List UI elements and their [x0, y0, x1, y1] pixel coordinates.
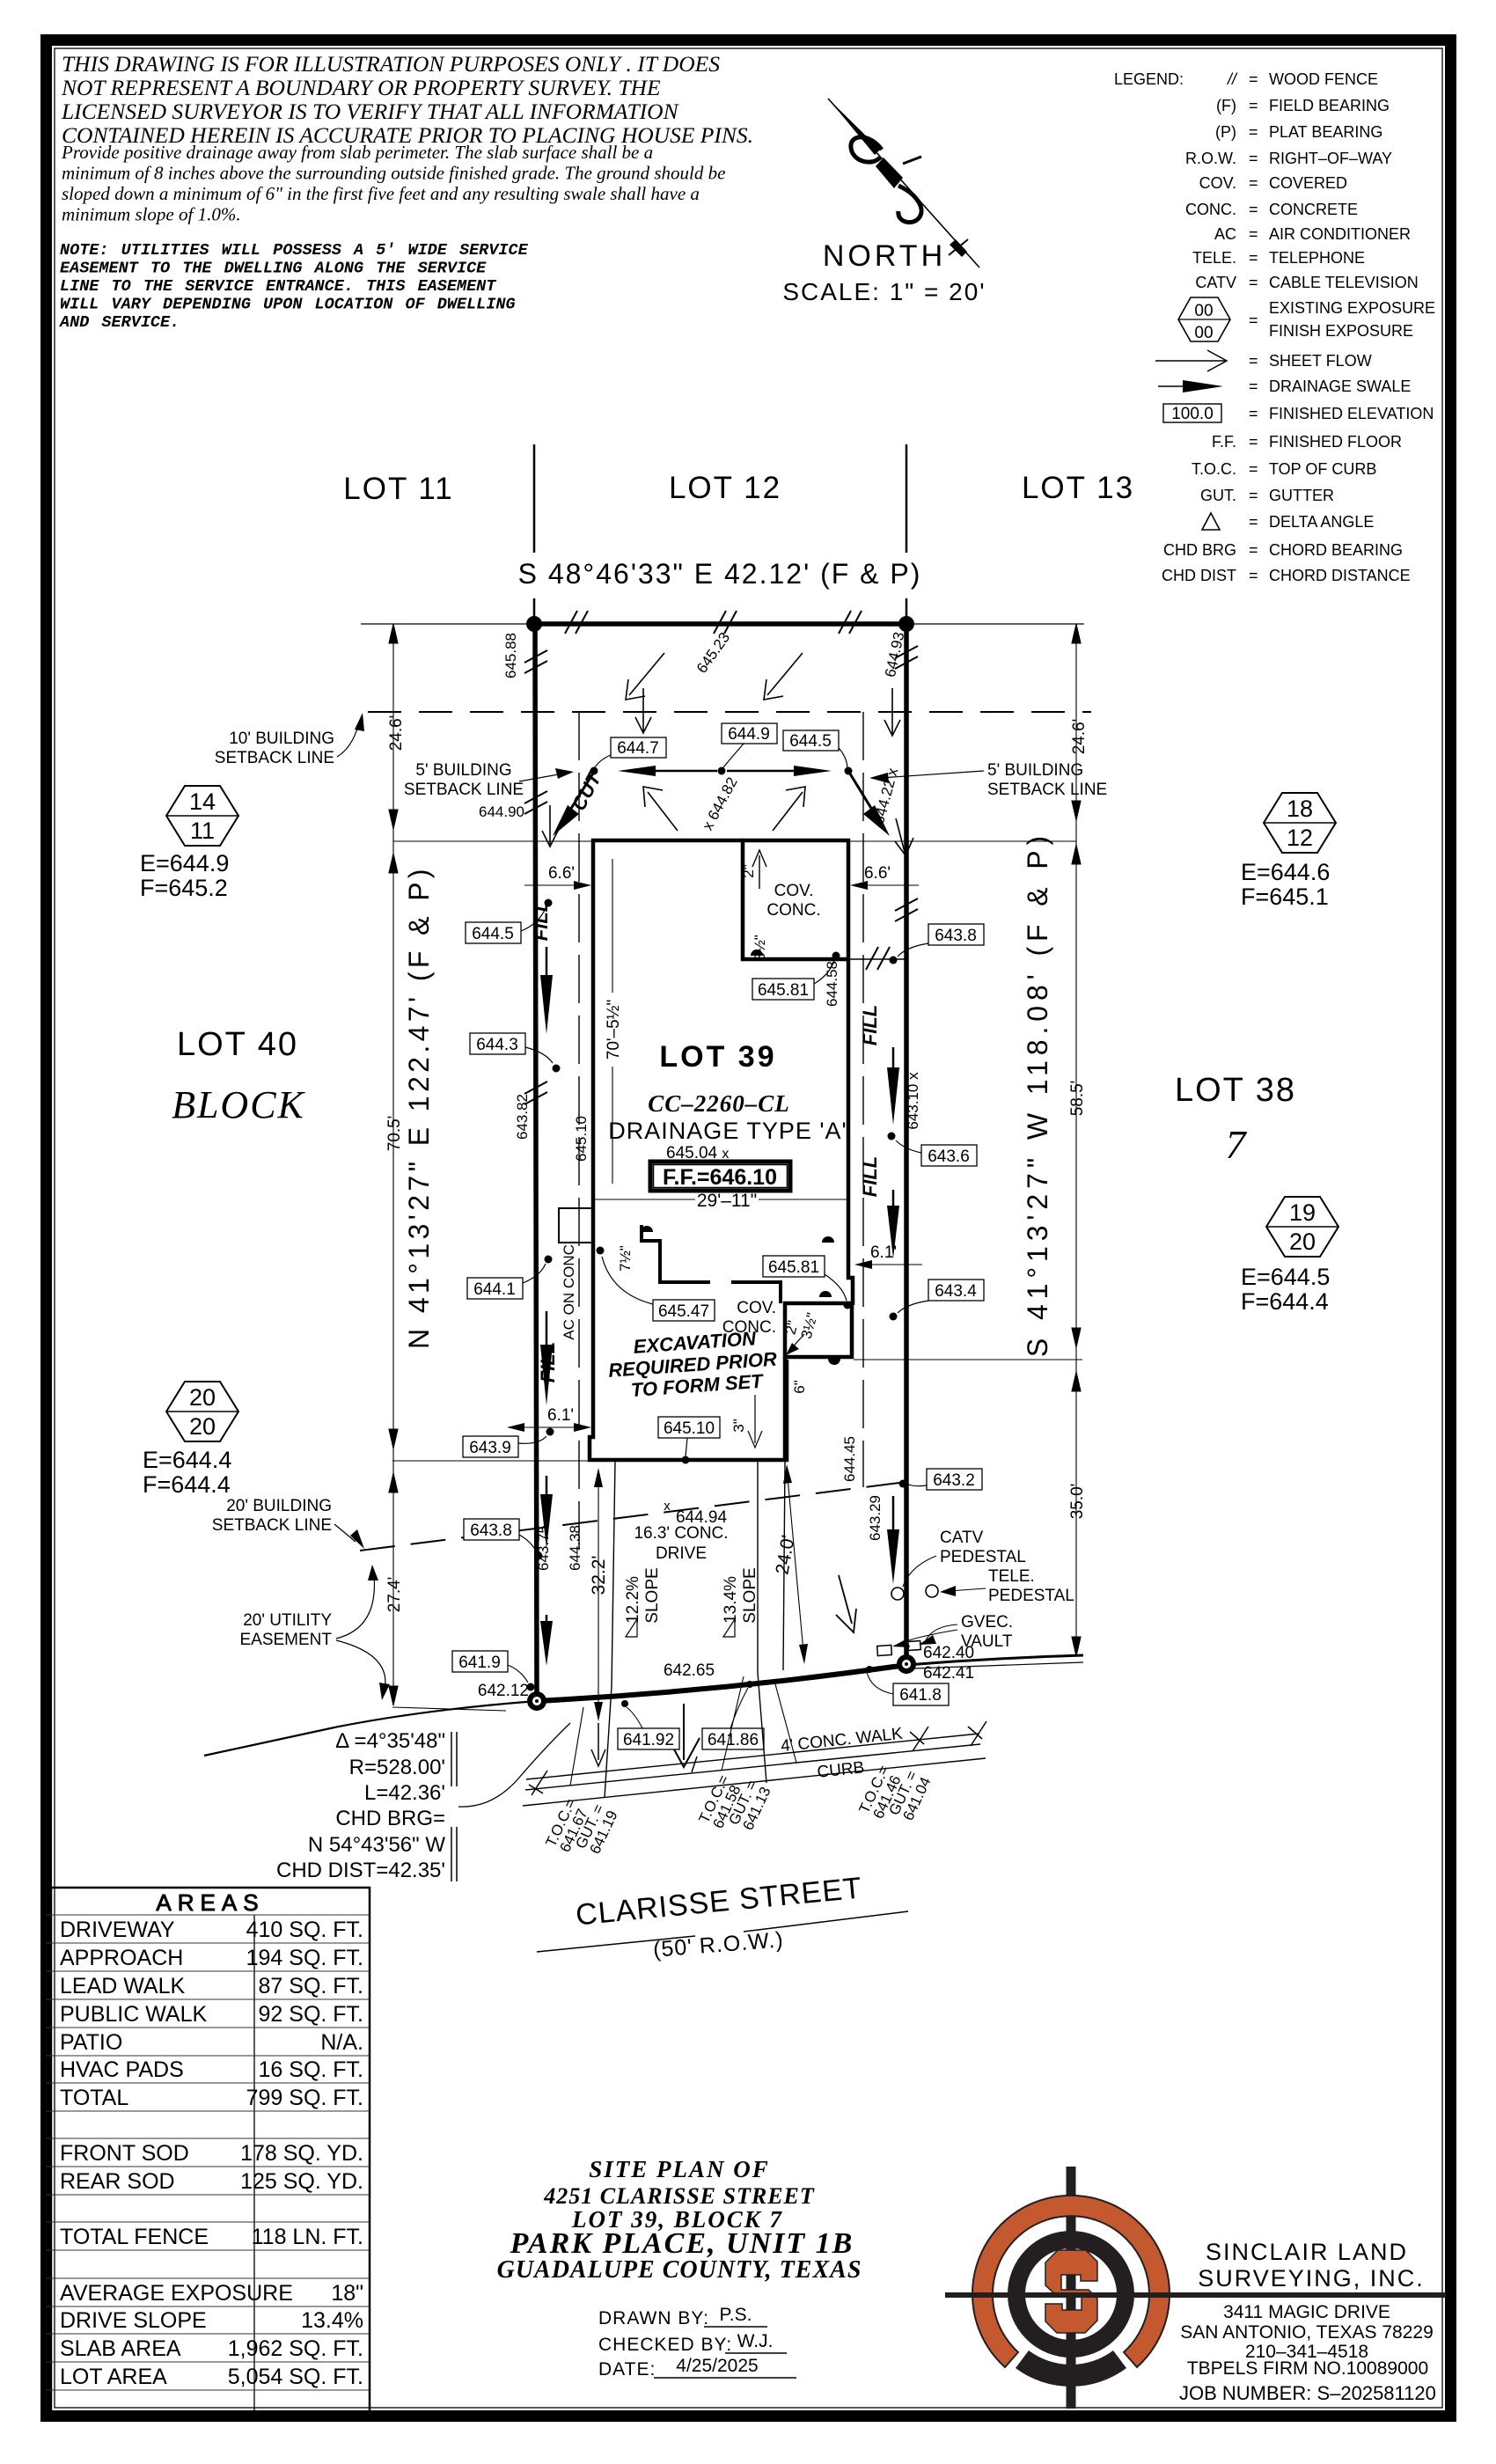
svg-text:3": 3" [730, 1419, 747, 1433]
svg-text:FILL: FILL [859, 1005, 881, 1045]
svg-text:645.47: 645.47 [658, 1302, 709, 1321]
svg-text:FIELD BEARING: FIELD BEARING [1269, 97, 1390, 114]
svg-text:643.8: 643.8 [470, 1522, 512, 1540]
svg-text:AVERAGE EXPOSURE: AVERAGE EXPOSURE [60, 2281, 293, 2306]
svg-text:643.10 x: 643.10 x [905, 1072, 921, 1130]
svg-text:SITE PLAN OF: SITE PLAN OF [589, 2156, 770, 2182]
svg-text:FINISHED FLOOR: FINISHED FLOOR [1269, 433, 1402, 451]
svg-text:20' UTILITY: 20' UTILITY [243, 1611, 332, 1630]
svg-text:CHD DIST=42.35': CHD DIST=42.35' [276, 1859, 445, 1882]
svg-text:W.J.: W.J. [737, 2331, 774, 2351]
svg-text:24.6': 24.6' [387, 715, 406, 752]
svg-text:SETBACK LINE: SETBACK LINE [404, 781, 524, 799]
svg-text:EASEMENT: EASEMENT [239, 1631, 332, 1649]
svg-text:S 41°13'27" W 118.08' (F & P): S 41°13'27" W 118.08' (F & P) [1022, 831, 1053, 1357]
svg-text:35.0': 35.0' [1068, 1484, 1087, 1520]
svg-text:DRAWN BY:: DRAWN BY: [598, 2308, 709, 2328]
svg-text:N 41°13'27" E 122.47' (F & P): N 41°13'27" E 122.47' (F & P) [403, 865, 435, 1349]
svg-text:20: 20 [1289, 1228, 1316, 1255]
svg-text:644.9: 644.9 [728, 725, 770, 744]
svg-text:00: 00 [1194, 302, 1213, 320]
svg-text:APPROACH: APPROACH [60, 1946, 183, 1970]
svg-text:minimum of 8 inches above the: minimum of 8 inches above the surroundin… [62, 163, 725, 184]
svg-text:644.58: 644.58 [824, 961, 840, 1007]
svg-text:CONC.: CONC. [766, 901, 820, 920]
svg-text:32.2': 32.2' [589, 1556, 609, 1595]
svg-text:644.3: 644.3 [476, 1036, 518, 1054]
svg-text:F=645.2: F=645.2 [140, 875, 228, 901]
svg-text:E=644.5: E=644.5 [1241, 1264, 1330, 1290]
svg-text:70.5': 70.5' [385, 1116, 404, 1152]
svg-text:SETBACK LINE: SETBACK LINE [215, 749, 334, 767]
svg-text:TELE.: TELE. [1192, 249, 1236, 267]
svg-text:643.82: 643.82 [514, 1094, 531, 1140]
svg-text:642.41: 642.41 [923, 1664, 974, 1683]
svg-text:N 54°43'56" W: N 54°43'56" W [308, 1833, 445, 1857]
svg-text:100.0: 100.0 [1171, 405, 1214, 423]
svg-text:18: 18 [1287, 796, 1313, 822]
svg-text:SLAB AREA: SLAB AREA [60, 2336, 181, 2361]
svg-text:6.1': 6.1' [547, 1406, 574, 1425]
svg-text:AREAS: AREAS [156, 1889, 264, 1916]
svg-text:CHD BRG: CHD BRG [1163, 541, 1236, 559]
svg-text:CHORD BEARING: CHORD BEARING [1269, 541, 1403, 559]
svg-text:COVERED: COVERED [1269, 174, 1347, 192]
svg-text:27.4': 27.4' [385, 1577, 404, 1613]
svg-text:=: = [1249, 513, 1258, 531]
svg-text:645.81: 645.81 [758, 981, 809, 1000]
svg-text:WOOD FENCE: WOOD FENCE [1269, 70, 1378, 88]
svg-text:58.5': 58.5' [1068, 1081, 1087, 1117]
svg-text:R=528.00': R=528.00' [349, 1756, 445, 1779]
svg-text:642.40: 642.40 [923, 1644, 974, 1662]
svg-text:24.6': 24.6' [1070, 719, 1089, 755]
svg-text:=: = [1249, 174, 1258, 192]
svg-text:E=644.4: E=644.4 [143, 1447, 231, 1473]
svg-text:3411 MAGIC DRIVE: 3411 MAGIC DRIVE [1223, 2302, 1390, 2322]
svg-text:LICENSED SURVEYOR IS TO VERIFY: LICENSED SURVEYOR IS TO VERIFY THAT ALL … [61, 99, 680, 124]
svg-text:5,054 SQ. FT.: 5,054 SQ. FT. [228, 2365, 363, 2389]
svg-text://: // [1226, 70, 1238, 88]
svg-text:13.4%: 13.4% [301, 2308, 363, 2333]
svg-text:LOT AREA: LOT AREA [60, 2365, 167, 2389]
svg-text:20: 20 [189, 1413, 216, 1440]
svg-text:LOT 40: LOT 40 [177, 1026, 298, 1063]
svg-text:TELE.: TELE. [988, 1567, 1035, 1586]
svg-text:(P): (P) [1215, 123, 1236, 141]
svg-text:WILL VARY DEPENDING UPON LOCAT: WILL VARY DEPENDING UPON LOCATION OF DWE… [60, 296, 516, 314]
svg-text:CABLE TELEVISION: CABLE TELEVISION [1269, 274, 1419, 291]
svg-text:118 LN. FT.: 118 LN. FT. [252, 2225, 363, 2249]
svg-text:=: = [1249, 70, 1258, 88]
svg-text:NORTH: NORTH [823, 239, 946, 273]
svg-text:GUT.: GUT. [1200, 487, 1236, 504]
svg-text:TOTAL: TOTAL [60, 2086, 128, 2110]
svg-text:644.5: 644.5 [789, 732, 832, 751]
svg-text:DRAINAGE SWALE: DRAINAGE SWALE [1269, 378, 1411, 395]
svg-text:JOB NUMBER: S–202581120: JOB NUMBER: S–202581120 [1179, 2382, 1436, 2404]
svg-text:CHORD DISTANCE: CHORD DISTANCE [1269, 567, 1411, 584]
svg-text:SHEET FLOW: SHEET FLOW [1269, 352, 1372, 370]
svg-text:7: 7 [1226, 1122, 1248, 1167]
svg-text:=: = [1249, 123, 1258, 141]
svg-text:643.75: 643.75 [535, 1525, 552, 1571]
svg-text:sloped down a minimum of 6" in: sloped down a minimum of 6" in the first… [62, 183, 700, 204]
svg-text:S 48°46'33" E 42.12' (F & P): S 48°46'33" E 42.12' (F & P) [518, 558, 922, 590]
svg-text:6.6': 6.6' [864, 864, 891, 883]
svg-text:=: = [1249, 225, 1258, 243]
svg-text:=: = [1249, 405, 1258, 422]
svg-text:GUTTER: GUTTER [1269, 487, 1334, 504]
svg-text:16 SQ. FT.: 16 SQ. FT. [259, 2057, 363, 2082]
svg-text:645.88: 645.88 [502, 633, 519, 678]
svg-text:CHECKED BY:: CHECKED BY: [598, 2335, 732, 2355]
svg-text:194 SQ. FT.: 194 SQ. FT. [246, 1946, 363, 1970]
svg-text:LOT 12: LOT 12 [669, 471, 781, 505]
svg-text:F=644.4: F=644.4 [143, 1471, 231, 1498]
svg-text:REAR SOD: REAR SOD [60, 2169, 175, 2194]
svg-text:FINISHED ELEVATION: FINISHED ELEVATION [1269, 405, 1434, 422]
svg-text:642.12: 642.12 [478, 1682, 529, 1700]
svg-text:20: 20 [189, 1384, 216, 1411]
svg-text:=: = [1249, 201, 1258, 218]
svg-text:645.10: 645.10 [573, 1116, 590, 1162]
svg-text:SETBACK LINE: SETBACK LINE [987, 781, 1107, 799]
svg-text:FRONT SOD: FRONT SOD [60, 2141, 189, 2166]
svg-text:F=645.1: F=645.1 [1241, 884, 1329, 910]
svg-text:641.86: 641.86 [708, 1731, 759, 1749]
svg-text:EXISTING EXPOSURE: EXISTING EXPOSURE [1269, 299, 1435, 317]
svg-text:LINE TO THE SERVICE ENTRANCE.: LINE TO THE SERVICE ENTRANCE. THIS EASEM… [60, 277, 496, 296]
svg-text:=: = [1249, 460, 1258, 478]
svg-text:GVEC.: GVEC. [961, 1613, 1013, 1632]
svg-text:=: = [1249, 541, 1258, 559]
svg-text:6": 6" [791, 1380, 808, 1394]
svg-text:6.6': 6.6' [548, 864, 575, 883]
svg-text:P.S.: P.S. [720, 2305, 752, 2325]
svg-text:643.6: 643.6 [928, 1148, 970, 1166]
svg-text:SCALE: 1" = 20': SCALE: 1" = 20' [782, 278, 986, 305]
svg-text:(F): (F) [1216, 97, 1236, 114]
svg-text:LOT 39: LOT 39 [659, 1040, 776, 1074]
svg-text:10' BUILDING: 10' BUILDING [229, 730, 334, 748]
svg-text:FINISH EXPOSURE: FINISH EXPOSURE [1269, 322, 1413, 340]
svg-text:T.O.C.: T.O.C. [1192, 460, 1236, 478]
svg-text:DELTA ANGLE: DELTA ANGLE [1269, 513, 1374, 531]
svg-text:29'–11": 29'–11" [697, 1191, 757, 1211]
svg-text:LOT 11: LOT 11 [343, 472, 454, 506]
svg-text:AC: AC [1214, 225, 1236, 243]
svg-text:20' BUILDING: 20' BUILDING [226, 1497, 332, 1515]
svg-text:LOT 38: LOT 38 [1175, 1072, 1296, 1109]
svg-text:minimum slope of 1.0%.: minimum slope of 1.0%. [62, 204, 241, 225]
svg-text:FILL: FILL [537, 1342, 559, 1382]
svg-text:COV.: COV. [1199, 174, 1236, 192]
svg-text:F.F.: F.F. [1212, 433, 1236, 451]
svg-text:=: = [1249, 150, 1258, 167]
svg-text:NOT REPRESENT A BOUNDARY OR PR: NOT REPRESENT A BOUNDARY OR PROPERTY SUR… [61, 75, 661, 100]
svg-text:4251 CLARISSE STREET: 4251 CLARISSE STREET [543, 2183, 815, 2209]
svg-text:643.2: 643.2 [933, 1471, 975, 1490]
svg-text:641.8: 641.8 [899, 1686, 942, 1705]
svg-text:644.90: 644.90 [479, 803, 524, 820]
svg-text:SINCLAIR LAND: SINCLAIR LAND [1206, 2239, 1408, 2265]
svg-text:641.9: 641.9 [458, 1654, 501, 1672]
svg-text:11: 11 [190, 818, 215, 844]
svg-text:2": 2" [740, 864, 757, 878]
svg-text:7½": 7½" [617, 1245, 634, 1272]
svg-text:E=644.9: E=644.9 [140, 850, 229, 876]
svg-text:=: = [1249, 352, 1258, 370]
svg-text:F.F.=646.10: F.F.=646.10 [663, 1165, 777, 1190]
svg-text:SAN ANTONIO, TEXAS 78229: SAN ANTONIO, TEXAS 78229 [1180, 2322, 1434, 2343]
svg-text:644.5: 644.5 [472, 925, 514, 943]
svg-text:CONC.: CONC. [1185, 201, 1236, 218]
svg-text:645.10: 645.10 [664, 1419, 715, 1438]
svg-text:=: = [1249, 433, 1258, 451]
svg-text:CHD BRG=: CHD BRG= [335, 1807, 445, 1830]
svg-text:CONCRETE: CONCRETE [1269, 201, 1358, 218]
svg-text:19: 19 [1289, 1199, 1316, 1226]
svg-text:PATIO: PATIO [60, 2030, 122, 2055]
svg-text:12.2%: 12.2% [624, 1576, 642, 1624]
svg-text:SETBACK LINE: SETBACK LINE [212, 1516, 332, 1535]
svg-text:=: = [1249, 274, 1258, 291]
svg-text:=: = [1249, 378, 1258, 395]
svg-text:CATV: CATV [940, 1529, 984, 1547]
svg-text:F=644.4: F=644.4 [1241, 1288, 1329, 1315]
svg-text:COV.: COV. [737, 1299, 776, 1317]
svg-text:TELEPHONE: TELEPHONE [1269, 249, 1365, 267]
svg-text:SLOPE: SLOPE [643, 1567, 662, 1623]
svg-text:644.45: 644.45 [841, 1436, 858, 1482]
svg-text:NOTE: UTILITIES WILL POSSESS A: NOTE: UTILITIES WILL POSSESS A 5' WIDE S… [60, 241, 529, 260]
svg-text:Δ =4°35'48": Δ =4°35'48" [335, 1729, 445, 1753]
svg-text:00: 00 [1194, 324, 1213, 342]
svg-text:RIGHT–OF–WAY: RIGHT–OF–WAY [1269, 150, 1392, 167]
svg-text:EASEMENT TO THE DWELLING ALONG: EASEMENT TO THE DWELLING ALONG THE SERVI… [60, 260, 487, 278]
svg-text:TOP OF CURB: TOP OF CURB [1269, 460, 1376, 478]
svg-text:645.81: 645.81 [768, 1258, 819, 1277]
svg-text:DRIVEWAY: DRIVEWAY [60, 1918, 175, 1942]
svg-text:4/25/2025: 4/25/2025 [676, 2356, 758, 2376]
svg-text:642.65: 642.65 [664, 1661, 715, 1680]
svg-text:644.94: 644.94 [676, 1508, 728, 1527]
svg-text:COV.: COV. [774, 882, 814, 900]
svg-text:CHD DIST: CHD DIST [1162, 567, 1236, 584]
svg-text:LEGEND:: LEGEND: [1114, 70, 1184, 88]
svg-text:N/A.: N/A. [320, 2030, 363, 2055]
svg-text:AND SERVICE.: AND SERVICE. [59, 313, 180, 332]
svg-text:PARK PLACE, UNIT 1B: PARK PLACE, UNIT 1B [510, 2227, 854, 2260]
svg-text:641.92: 641.92 [623, 1731, 674, 1749]
svg-text:=: = [1249, 567, 1258, 584]
svg-text:GUADALUPE COUNTY, TEXAS: GUADALUPE COUNTY, TEXAS [497, 2256, 862, 2284]
svg-text:16.3' CONC.: 16.3' CONC. [634, 1524, 728, 1543]
svg-text:644.7: 644.7 [617, 739, 659, 758]
svg-text:=: = [1249, 97, 1258, 114]
svg-text:BLOCK: BLOCK [172, 1083, 305, 1126]
svg-text:FILL: FILL [859, 1156, 881, 1197]
svg-text:DRAINAGE TYPE 'A': DRAINAGE TYPE 'A' [608, 1118, 847, 1144]
svg-text:CATV: CATV [1195, 274, 1236, 291]
svg-text:13.4%: 13.4% [722, 1576, 740, 1624]
svg-text:=: = [1249, 312, 1258, 329]
svg-text:5' BUILDING: 5' BUILDING [987, 761, 1083, 780]
svg-text:643.4: 643.4 [935, 1282, 977, 1301]
svg-text:AC ON CONC.: AC ON CONC. [561, 1240, 577, 1339]
svg-text:DATE:: DATE: [598, 2359, 656, 2380]
svg-text:PLAT BEARING: PLAT BEARING [1269, 123, 1382, 141]
svg-text:TBPELS FIRM NO.10089000: TBPELS FIRM NO.10089000 [1187, 2358, 1428, 2379]
svg-text:PEDESTAL: PEDESTAL [988, 1587, 1074, 1605]
svg-text:R.O.W.: R.O.W. [1185, 150, 1236, 167]
svg-text:799 SQ. FT.: 799 SQ. FT. [246, 2086, 363, 2110]
svg-text:87 SQ. FT.: 87 SQ. FT. [259, 1974, 363, 1998]
svg-text:DRIVE: DRIVE [656, 1544, 707, 1563]
svg-text:=: = [1249, 487, 1258, 504]
svg-text:14: 14 [189, 788, 216, 815]
svg-text:PEDESTAL: PEDESTAL [940, 1548, 1026, 1566]
svg-text:THIS DRAWING IS FOR ILLUSTRATI: THIS DRAWING IS FOR ILLUSTRATION PURPOSE… [62, 51, 720, 77]
svg-text:18": 18" [331, 2281, 363, 2306]
svg-text:410 SQ. FT.: 410 SQ. FT. [246, 1918, 363, 1942]
svg-text:125 SQ. YD.: 125 SQ. YD. [240, 2169, 363, 2194]
svg-text:SURVEYING, INC.: SURVEYING, INC. [1198, 2265, 1425, 2292]
svg-text:HVAC PADS: HVAC PADS [60, 2057, 184, 2082]
svg-text:LOT 13: LOT 13 [1022, 471, 1134, 505]
svg-text:643.9: 643.9 [469, 1439, 511, 1457]
svg-text:3½": 3½" [752, 935, 768, 961]
svg-text:92 SQ. FT.: 92 SQ. FT. [259, 2002, 363, 2027]
svg-text:LEAD WALK: LEAD WALK [60, 1974, 186, 1998]
svg-text:x: x [664, 1499, 671, 1514]
svg-text:TOTAL FENCE: TOTAL FENCE [60, 2225, 209, 2249]
svg-text:L=42.36': L=42.36' [364, 1781, 445, 1805]
svg-text:644.1: 644.1 [473, 1280, 516, 1299]
svg-text:644.38: 644.38 [567, 1525, 583, 1571]
svg-text:70'–5½": 70'–5½" [605, 1000, 623, 1060]
svg-text:CC–2260–CL: CC–2260–CL [648, 1090, 790, 1117]
svg-text:643.29: 643.29 [867, 1495, 884, 1541]
svg-text:PUBLIC WALK: PUBLIC WALK [60, 2002, 208, 2027]
svg-text:643.8: 643.8 [935, 927, 977, 945]
svg-text:12: 12 [1287, 825, 1313, 851]
svg-text:DRIVE SLOPE: DRIVE SLOPE [60, 2308, 207, 2333]
svg-text:Provide positive drainage away: Provide positive drainage away from slab… [61, 142, 653, 163]
svg-text:1,962 SQ. FT.: 1,962 SQ. FT. [228, 2336, 363, 2361]
svg-text:=: = [1249, 249, 1258, 267]
svg-text:5' BUILDING: 5' BUILDING [415, 761, 511, 780]
svg-text:178 SQ. YD.: 178 SQ. YD. [240, 2141, 363, 2166]
svg-text:AIR CONDITIONER: AIR CONDITIONER [1269, 225, 1411, 243]
svg-text:FILL: FILL [530, 900, 552, 941]
svg-text:E=644.6: E=644.6 [1241, 859, 1330, 885]
svg-text:SLOPE: SLOPE [741, 1567, 759, 1623]
